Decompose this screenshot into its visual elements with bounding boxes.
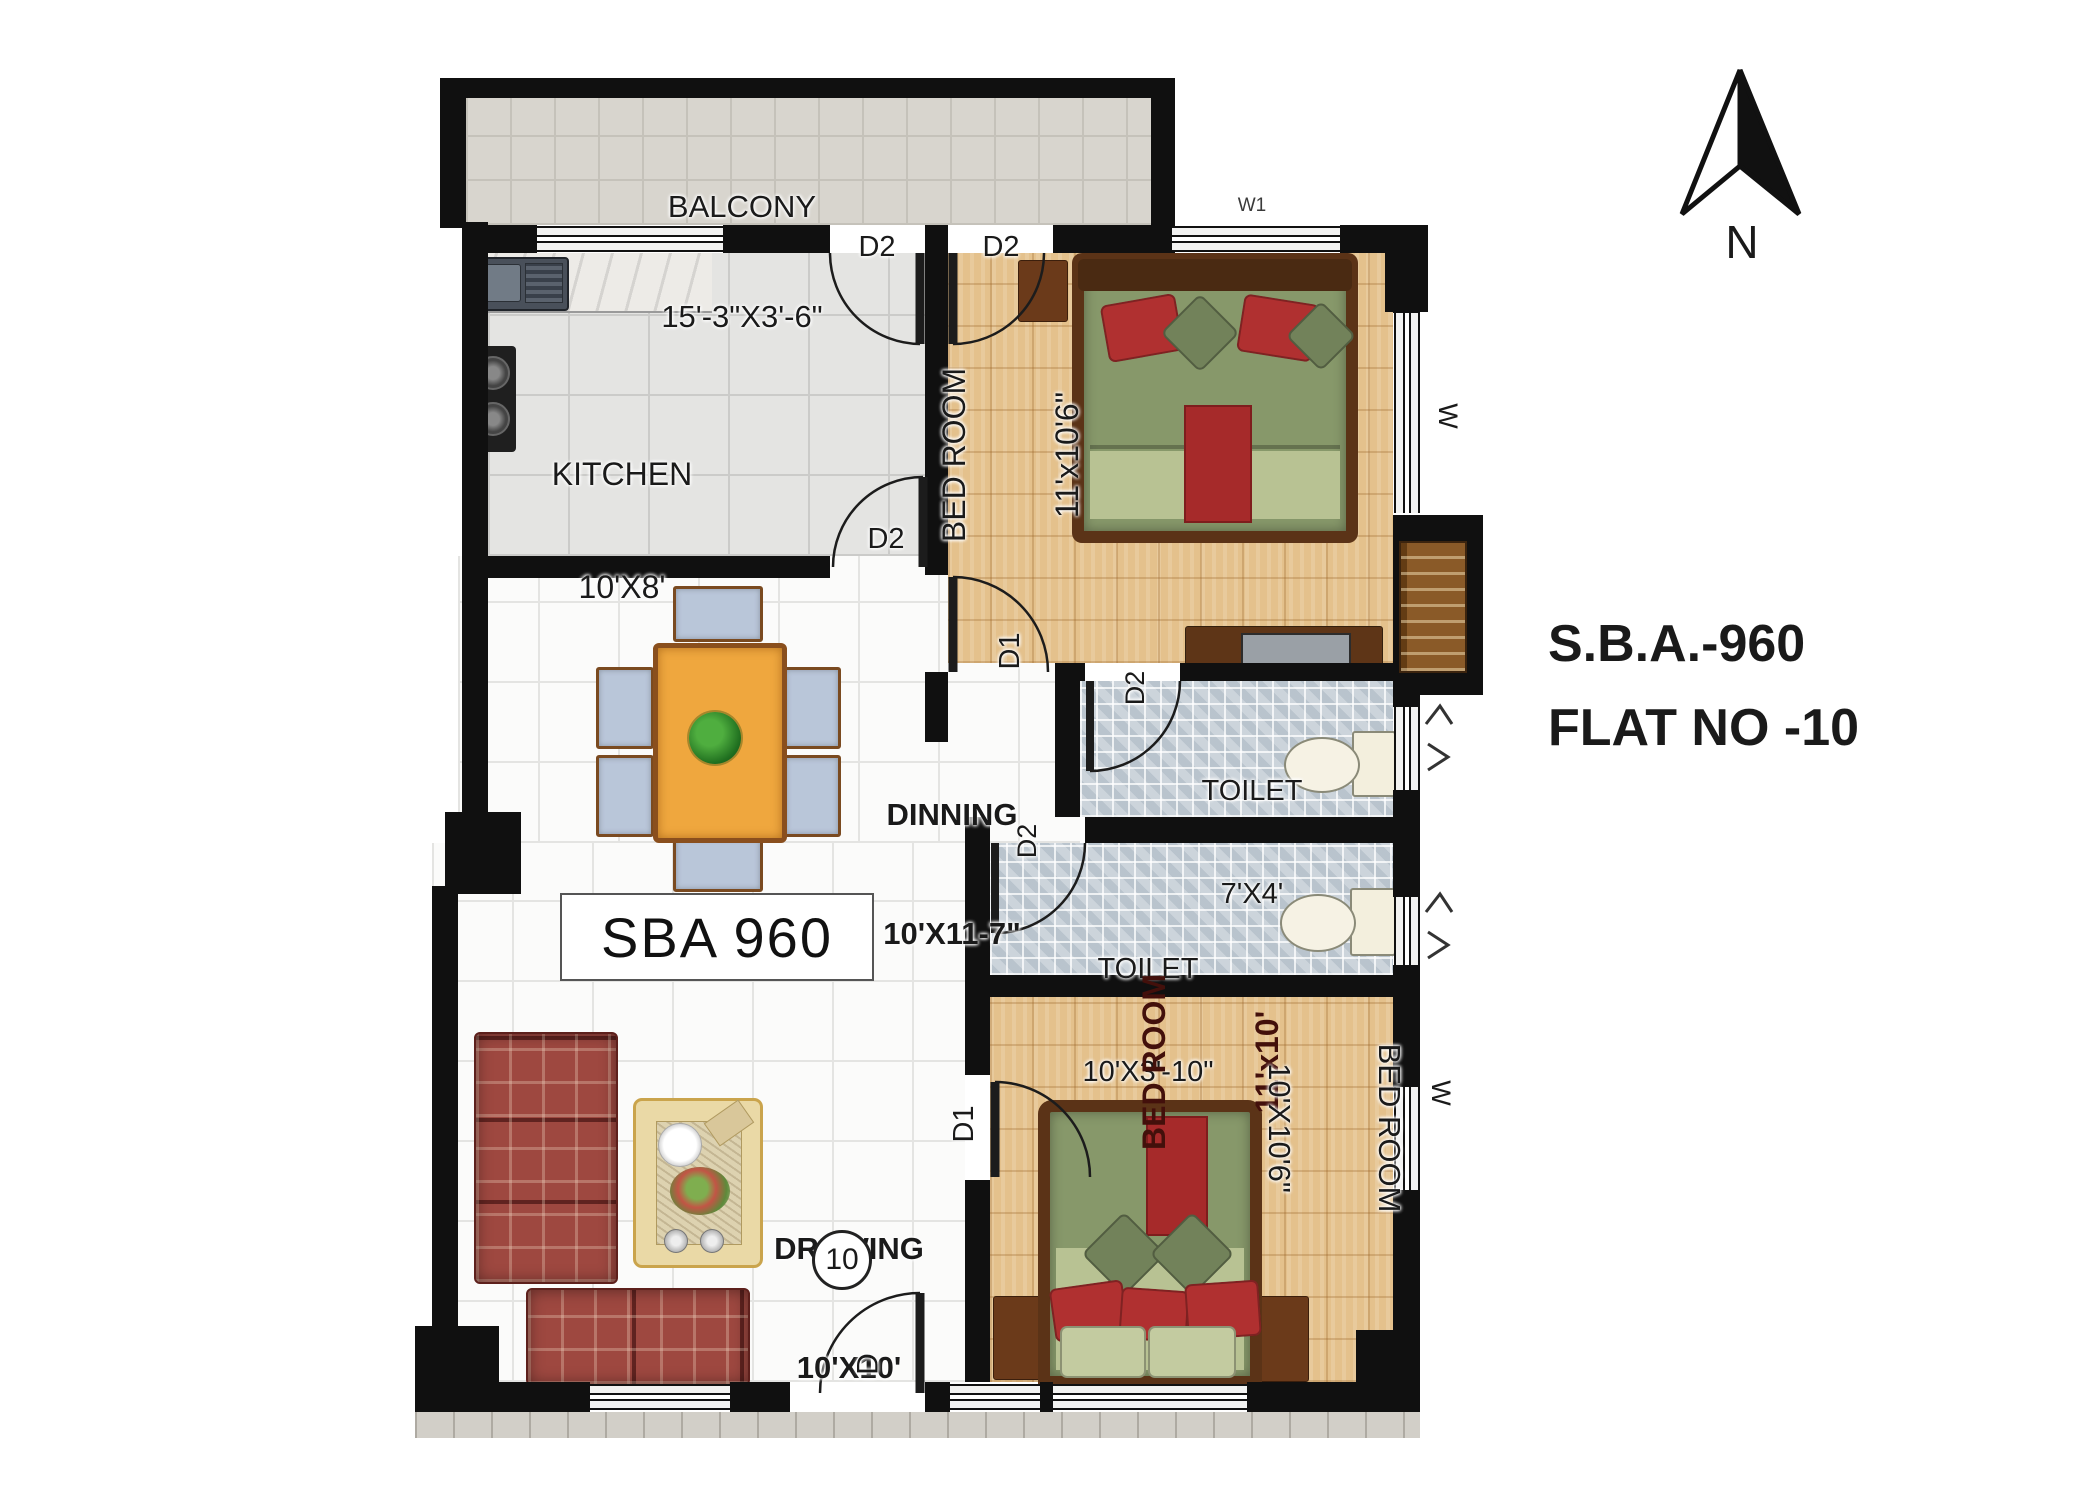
- vent-symbol: [1426, 706, 1452, 724]
- vent-symbol: [1428, 744, 1448, 770]
- door-balcony-bedroom: [953, 253, 1044, 344]
- kitchen-label: KITCHEN 10'X8': [552, 380, 692, 644]
- door-balcony-kitchen: [830, 253, 920, 344]
- room-dims: 7'X4': [1202, 877, 1303, 911]
- door-label-d1: D1: [947, 1105, 981, 1142]
- door-label-d2: D2: [858, 230, 895, 264]
- window-label-w: W: [1424, 1080, 1456, 1105]
- room-dims: 15'-3"X3'-6": [661, 299, 822, 336]
- door-label-d2: D2: [1120, 671, 1152, 706]
- room-dims: 10'X8': [552, 569, 692, 607]
- door-label-d1: D1: [993, 632, 1027, 669]
- flat-number-circle: 10: [812, 1230, 872, 1290]
- room-dims: 10'X10': [774, 1348, 924, 1388]
- sba-area-label: SBA 960: [601, 905, 833, 970]
- balcony-label: BALCONY 15'-3"X3'-6": [661, 116, 822, 372]
- floor-plan-page: { "title_block": { "sba": "S.B.A.-960", …: [0, 0, 2100, 1500]
- door-label-d2: D2: [982, 230, 1019, 264]
- room-name: DINNING: [883, 795, 1021, 835]
- sba-title: S.B.A.-960: [1548, 614, 1805, 675]
- room-name: TOILET: [1202, 774, 1303, 808]
- toilet-attached-label: TOILET 7'X4': [1202, 706, 1303, 946]
- north-arrow-icon: [1682, 70, 1799, 214]
- room-name: BED ROOM: [1135, 974, 1173, 1150]
- window-label-w1: W1: [1238, 195, 1267, 217]
- bedroom-top-label: BED ROOM 11'x10'6": [860, 368, 1124, 542]
- door-label-d2: D2: [1012, 824, 1044, 859]
- bedroom-right-label: BED ROOM 10'X10'6": [1224, 1044, 1480, 1213]
- room-dims: 11'x10'6": [1049, 368, 1087, 542]
- room-name: BED ROOM: [1370, 1044, 1407, 1213]
- room-name: BALCONY: [661, 189, 822, 226]
- door-label-d2: D2: [867, 522, 904, 556]
- dining-label: DINNING 10'X11-7": [883, 716, 1021, 994]
- window-label-w: W: [1431, 403, 1463, 428]
- door-label-d: D: [850, 1353, 885, 1375]
- vent-symbol: [1426, 894, 1452, 912]
- room-dims: 10'X11-7": [883, 914, 1021, 954]
- compass-north-label: N: [1725, 215, 1758, 269]
- room-name: KITCHEN: [552, 456, 692, 494]
- vent-symbol: [1428, 932, 1448, 958]
- flat-number: 10: [825, 1243, 858, 1277]
- sba-area-box: SBA 960: [560, 893, 874, 981]
- flat-no-title: FLAT NO -10: [1548, 698, 1859, 759]
- room-name: BED ROOM: [935, 368, 973, 542]
- room-dims: 10'X10'6": [1261, 1044, 1298, 1213]
